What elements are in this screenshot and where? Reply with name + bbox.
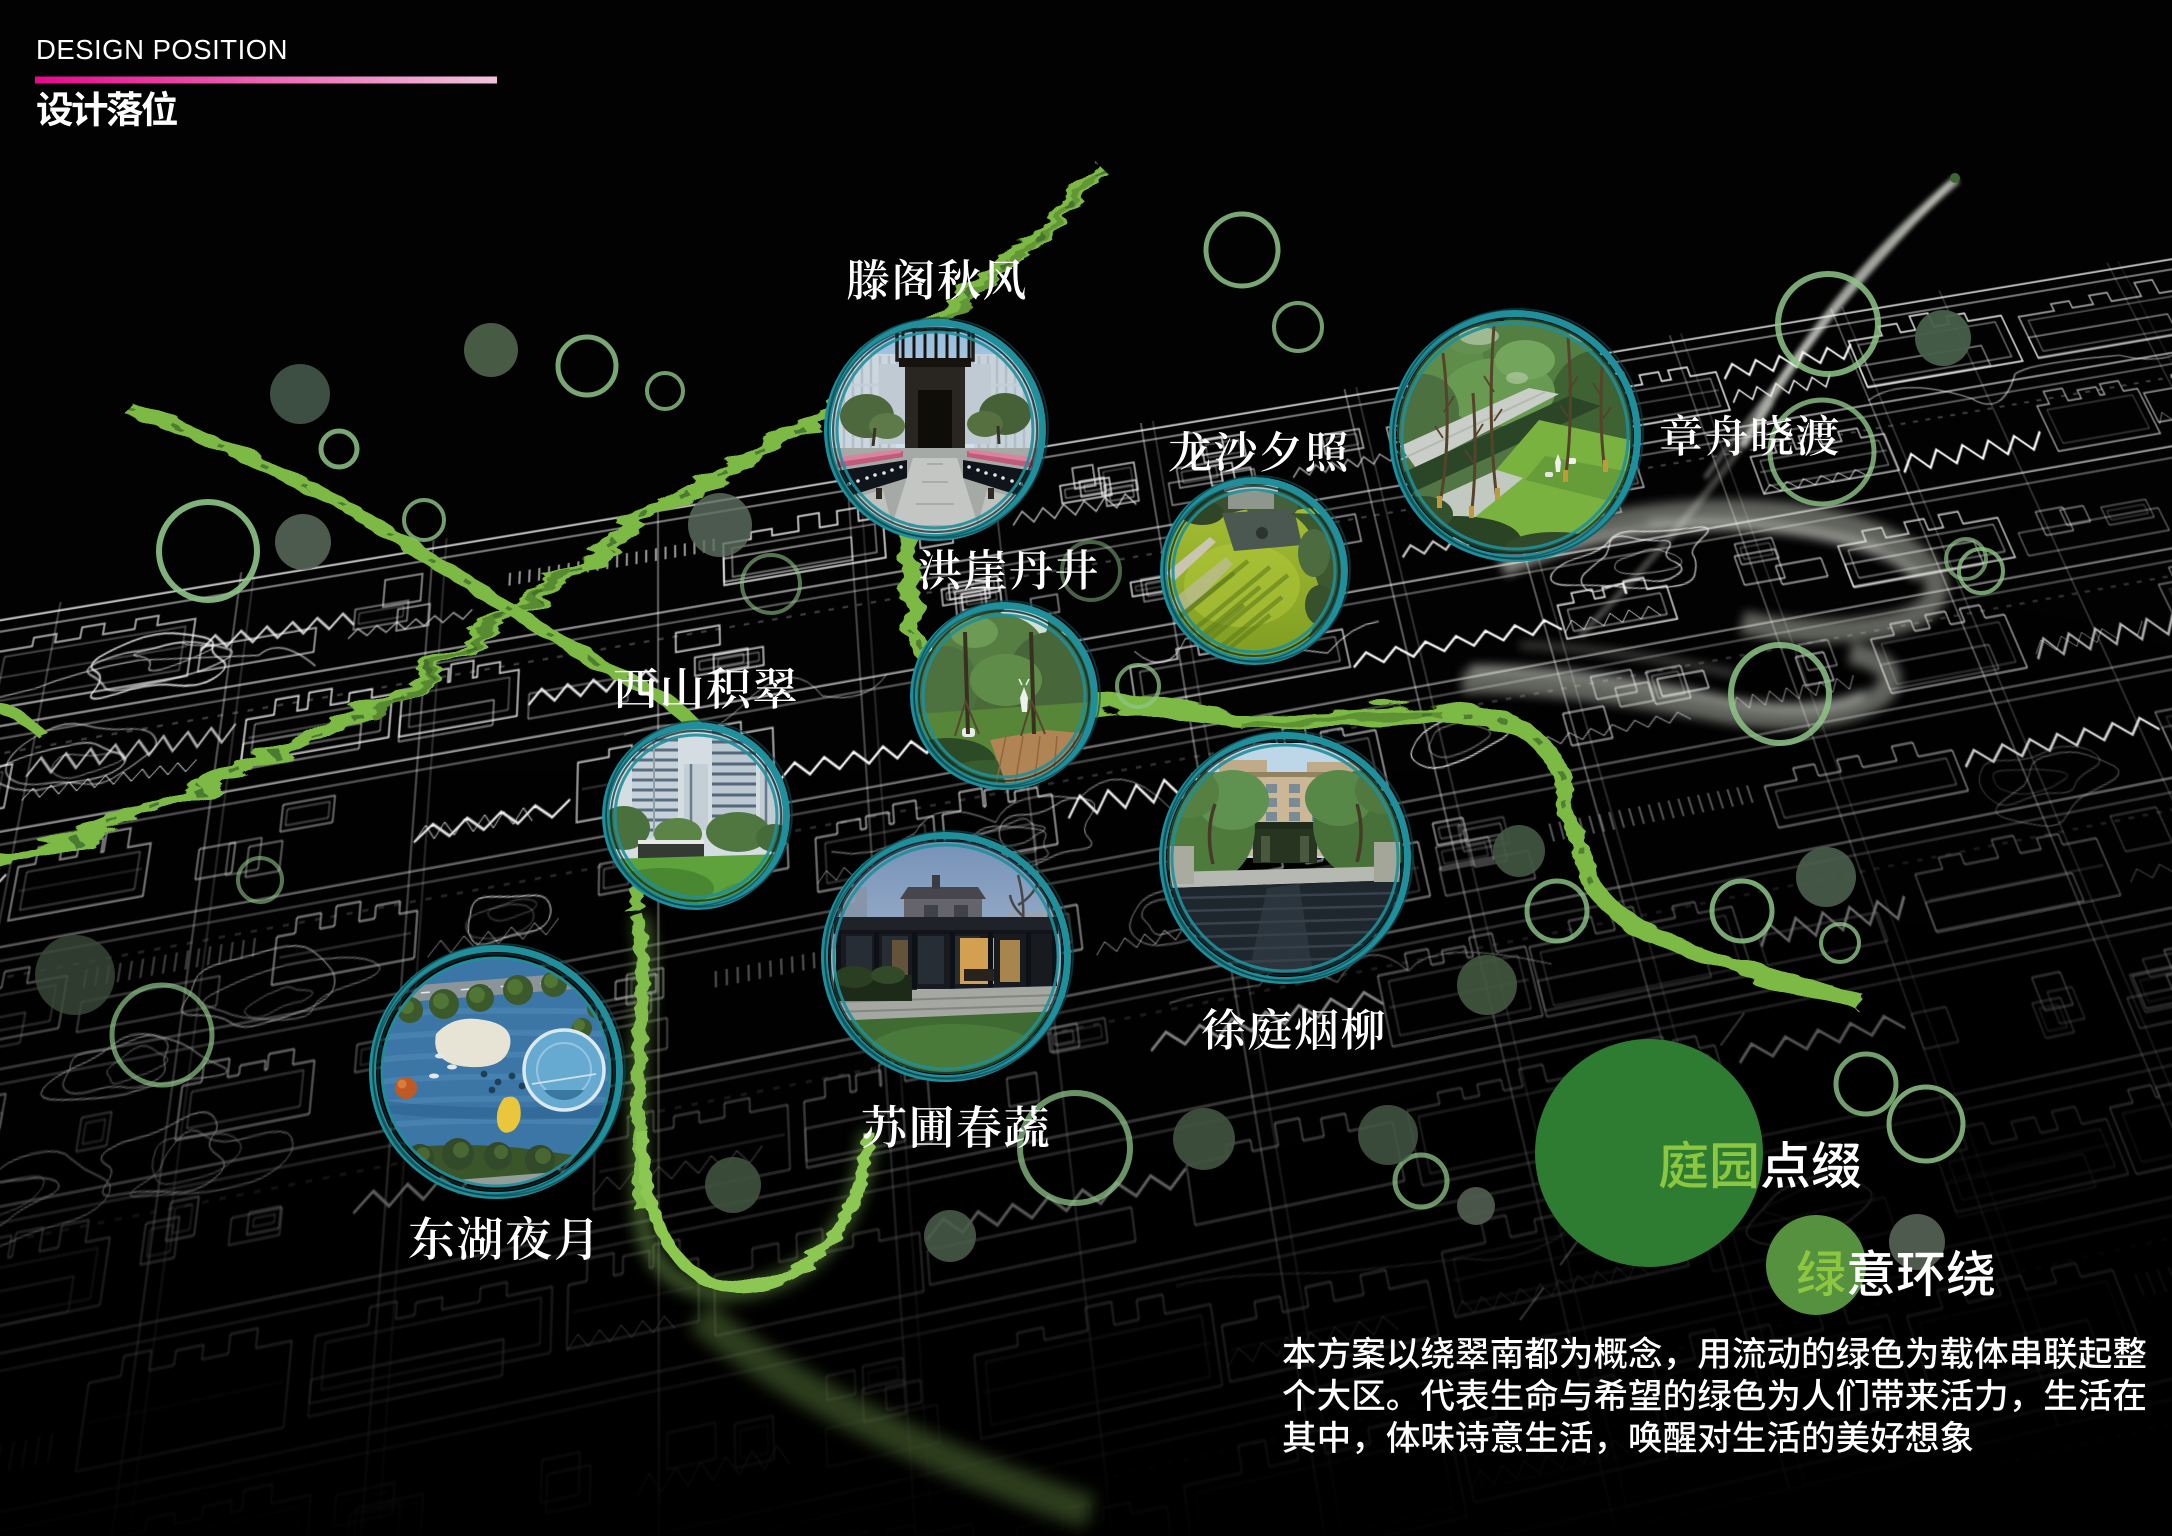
svg-text:DESIGN POSITION: DESIGN POSITION <box>36 34 288 65</box>
